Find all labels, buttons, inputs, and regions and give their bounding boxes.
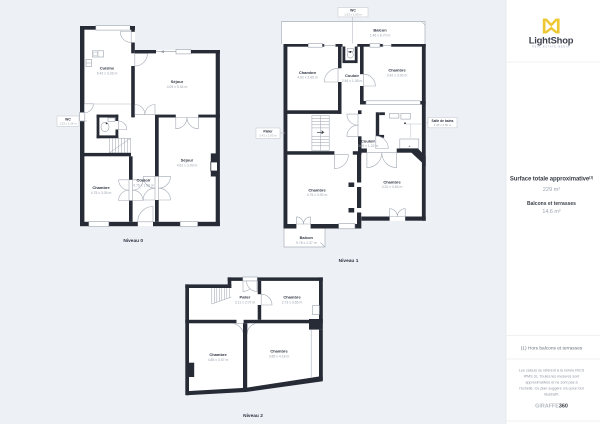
svg-text:Chambre: Chambre — [299, 70, 317, 75]
svg-text:Palier: Palier — [240, 295, 251, 300]
svg-text:Séjour: Séjour — [181, 158, 194, 163]
svg-text:REAL ESTATE MEDIA: REAL ESTATE MEDIA — [532, 45, 570, 48]
svg-text:2.45 x 2.55 m: 2.45 x 2.55 m — [434, 123, 452, 127]
svg-text:4.85 x 3.57 m: 4.85 x 3.57 m — [208, 358, 229, 362]
svg-text:Séjour: Séjour — [171, 79, 184, 84]
svg-text:Chambre: Chambre — [92, 185, 110, 190]
svg-text:4.09 x 5.34 m: 4.09 x 5.34 m — [167, 85, 188, 89]
svg-text:9.78 x 2.37 m: 9.78 x 2.37 m — [296, 241, 317, 245]
svg-text:14.6 m²: 14.6 m² — [542, 209, 560, 215]
svg-text:2.41 x 2.03 m: 2.41 x 2.03 m — [259, 134, 277, 138]
svg-text:2.73 x 3.65 m: 2.73 x 3.65 m — [282, 300, 303, 304]
svg-text:Chambre: Chambre — [209, 352, 227, 357]
svg-text:Chambre: Chambre — [388, 68, 406, 73]
svg-text:illustratif.: illustratif. — [544, 393, 559, 397]
svg-text:4.61 x 3.09 m: 4.61 x 3.09 m — [177, 164, 198, 168]
svg-text:IPMS 3c. Toutes les mesures so: IPMS 3c. Toutes les mesures sont — [524, 375, 580, 379]
svg-text:Couloir: Couloir — [345, 73, 359, 78]
svg-text:Niveau 0: Niveau 0 — [123, 238, 143, 244]
svg-text:Niveau 1: Niveau 1 — [339, 258, 359, 264]
svg-text:Chambre: Chambre — [270, 349, 288, 354]
svg-text:4.02 x 3.65 m: 4.02 x 3.65 m — [297, 76, 318, 80]
svg-text:Cuisine: Cuisine — [100, 66, 115, 71]
svg-text:GIRAFFE360: GIRAFFE360 — [535, 404, 568, 410]
svg-text:Balcons et terrasses: Balcons et terrasses — [527, 201, 576, 207]
svg-text:(1) Hors balcons et terrasses: (1) Hors balcons et terrasses — [521, 346, 583, 352]
svg-text:Couloir: Couloir — [361, 138, 375, 143]
svg-text:Chambre: Chambre — [383, 179, 401, 184]
svg-text:0.69 x 1.22 m: 0.69 x 1.22 m — [358, 144, 379, 148]
svg-text:4.20 x 3.83 m: 4.20 x 3.83 m — [382, 185, 403, 189]
svg-text:Chambre: Chambre — [283, 295, 301, 300]
svg-text:l'échelle. Ce plan suggéré n'a: l'échelle. Ce plan suggéré n'a qu'un but — [519, 387, 583, 391]
svg-text:approximatives et ne sont pas: approximatives et ne sont pas à — [525, 381, 578, 385]
svg-text:Surface totale approximative(1: Surface totale approximative(1) — [510, 176, 593, 183]
svg-text:LightShop: LightShop — [529, 34, 574, 45]
svg-text:4.75 x 3.92 m: 4.75 x 3.92 m — [307, 193, 328, 197]
svg-text:2.46 x 1.08 m: 2.46 x 1.08 m — [342, 79, 363, 83]
svg-text:1.46 x 8.70 m: 1.46 x 8.70 m — [370, 33, 391, 37]
svg-text:3.42 x 3.00 m: 3.42 x 3.00 m — [387, 73, 408, 77]
svg-text:Couloir: Couloir — [137, 178, 151, 183]
svg-text:4.75 x 3.05 m: 4.75 x 3.05 m — [91, 191, 112, 195]
svg-text:5.42 x 3.26 m: 5.42 x 3.26 m — [97, 72, 118, 76]
svg-text:3.85 x 4.18 m: 3.85 x 4.18 m — [269, 354, 290, 358]
svg-text:229 m²: 229 m² — [543, 187, 561, 193]
svg-text:3.11 x 2.07 m: 3.11 x 2.07 m — [235, 300, 255, 304]
svg-text:Chambre: Chambre — [308, 187, 326, 192]
svg-text:1.33 x 1.50 m: 1.33 x 1.50 m — [344, 13, 362, 17]
svg-text:0.76 x 1.98 m: 0.76 x 1.98 m — [133, 183, 154, 187]
svg-text:Les calculs se réfèrent à la n: Les calculs se réfèrent à la norme RICS — [519, 369, 585, 373]
svg-text:Niveau 2: Niveau 2 — [243, 413, 263, 419]
svg-text:Balcon: Balcon — [300, 235, 314, 240]
svg-text:1.23 x 1.26 m: 1.23 x 1.26 m — [59, 122, 77, 126]
svg-text:Balcon: Balcon — [373, 27, 387, 32]
